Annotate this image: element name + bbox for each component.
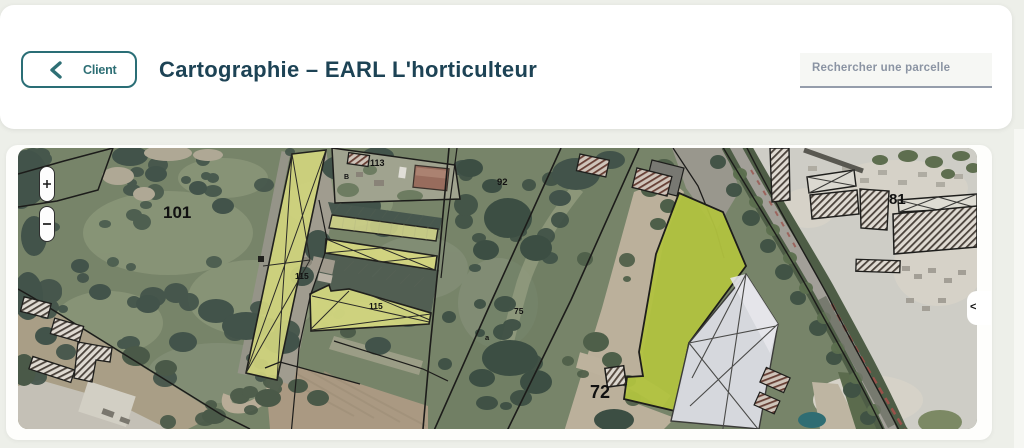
svg-text:B: B — [344, 174, 349, 181]
svg-text:75: 75 — [514, 306, 524, 316]
svg-text:81: 81 — [889, 191, 906, 208]
svg-text:115: 115 — [369, 301, 383, 311]
svg-text:92: 92 — [497, 177, 508, 188]
svg-text:72: 72 — [590, 382, 610, 402]
svg-text:113: 113 — [370, 158, 385, 168]
svg-text:115: 115 — [295, 271, 309, 281]
svg-text:101: 101 — [163, 203, 191, 222]
